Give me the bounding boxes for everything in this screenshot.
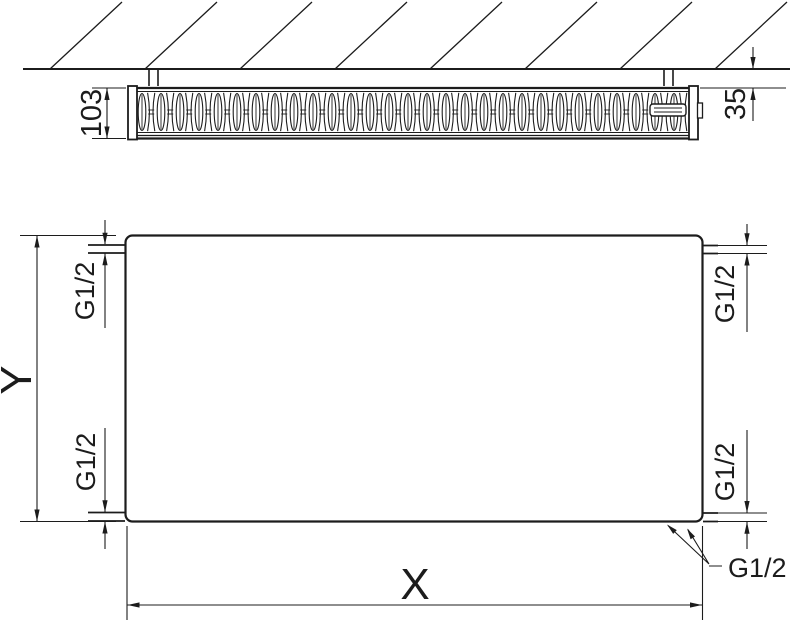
mounting-bracket-right	[664, 69, 673, 86]
depth-dimension: 103	[76, 88, 126, 139]
radiator-panel	[126, 236, 703, 522]
connection-stub-bottom-right	[703, 513, 767, 522]
arrowhead-down	[102, 500, 107, 512]
arrowhead-down	[744, 501, 749, 513]
arrowhead-down	[34, 510, 39, 522]
arrowhead-down	[102, 233, 107, 245]
thread-leader: G1/2	[667, 525, 787, 584]
radiator-technical-drawing: 103 35	[0, 0, 800, 624]
arrowhead-right	[690, 602, 702, 607]
thread-dimension-bottom-left: G1/2	[71, 428, 108, 549]
thread-dimension-top-left: G1/2	[70, 220, 108, 328]
thread-dimension-top-right: G1/2	[710, 224, 750, 332]
arrowhead-left	[128, 602, 140, 607]
thread-leader-label: G1/2	[728, 553, 787, 583]
arrowhead-down	[744, 233, 749, 245]
end-cap-left	[128, 86, 137, 140]
wall-gap-dimension: 35	[700, 47, 786, 121]
arrowhead-down	[750, 57, 755, 69]
hatch-lines	[50, 2, 787, 69]
thread-label-top-left: G1/2	[70, 262, 100, 321]
front-view: Y G1/2 G1/2 G1/2	[0, 220, 787, 620]
connection-stub-bottom-left	[88, 513, 125, 522]
top-view: 103 35	[23, 2, 790, 140]
wall-hatching	[23, 2, 790, 69]
arrowhead-up	[34, 236, 39, 248]
thread-dimension-bottom-right: G1/2	[710, 430, 750, 549]
thread-label-bottom-right: G1/2	[710, 443, 740, 502]
drawing-canvas: 103 35	[0, 0, 800, 624]
leader-lines	[668, 526, 722, 567]
radiator-top-view	[128, 86, 703, 140]
connection-stub-top-right	[703, 246, 767, 254]
convector-fins	[137, 92, 689, 132]
width-dimension: X	[127, 526, 703, 620]
thread-label-bottom-left: G1/2	[71, 433, 101, 492]
end-cap-right	[689, 86, 698, 140]
mounting-bracket-left	[149, 69, 158, 86]
connection-stub-top-left	[88, 245, 125, 253]
height-dimension-label: Y	[0, 365, 41, 394]
depth-dimension-label: 103	[76, 89, 108, 137]
arrowhead-up	[102, 253, 107, 265]
width-dimension-label: X	[400, 560, 429, 609]
connection-boss-right	[698, 103, 703, 118]
thread-label-top-right: G1/2	[710, 265, 740, 324]
arrowhead-up	[744, 254, 749, 266]
bracket-clamp	[650, 104, 686, 116]
arrowhead-leader	[687, 529, 695, 540]
wall-gap-dimension-label: 35	[720, 88, 752, 120]
arrowhead-up	[102, 522, 107, 534]
arrowhead-up	[744, 522, 749, 534]
